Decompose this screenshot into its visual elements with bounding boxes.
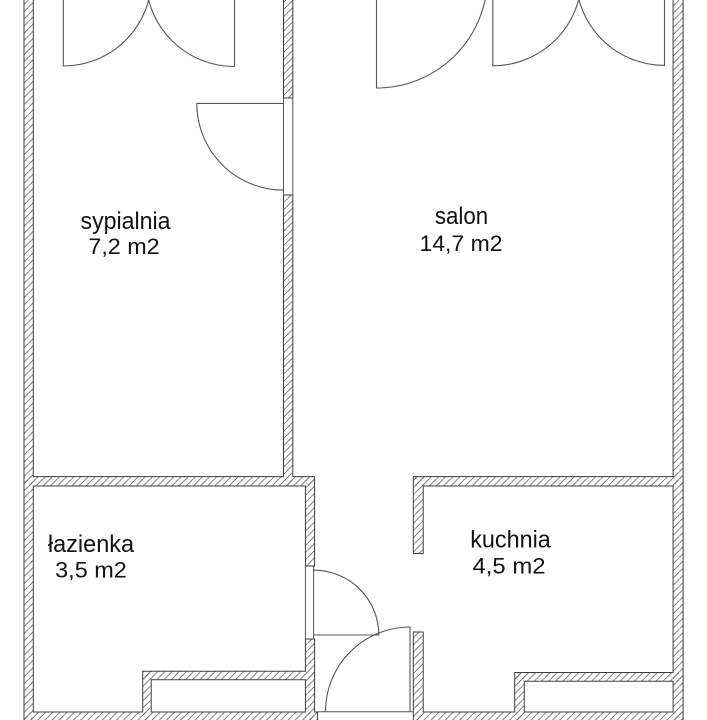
- svg-text:kuchnia: kuchnia: [470, 526, 551, 553]
- svg-text:3,5 m2: 3,5 m2: [55, 557, 127, 582]
- svg-text:salon: salon: [435, 203, 488, 230]
- svg-text:7,2 m2: 7,2 m2: [88, 234, 159, 259]
- svg-text:sypialnia: sypialnia: [81, 208, 172, 235]
- svg-text:14,7 m2: 14,7 m2: [420, 231, 503, 256]
- svg-text:łazienka: łazienka: [48, 531, 135, 558]
- svg-text:4,5 m2: 4,5 m2: [473, 554, 546, 579]
